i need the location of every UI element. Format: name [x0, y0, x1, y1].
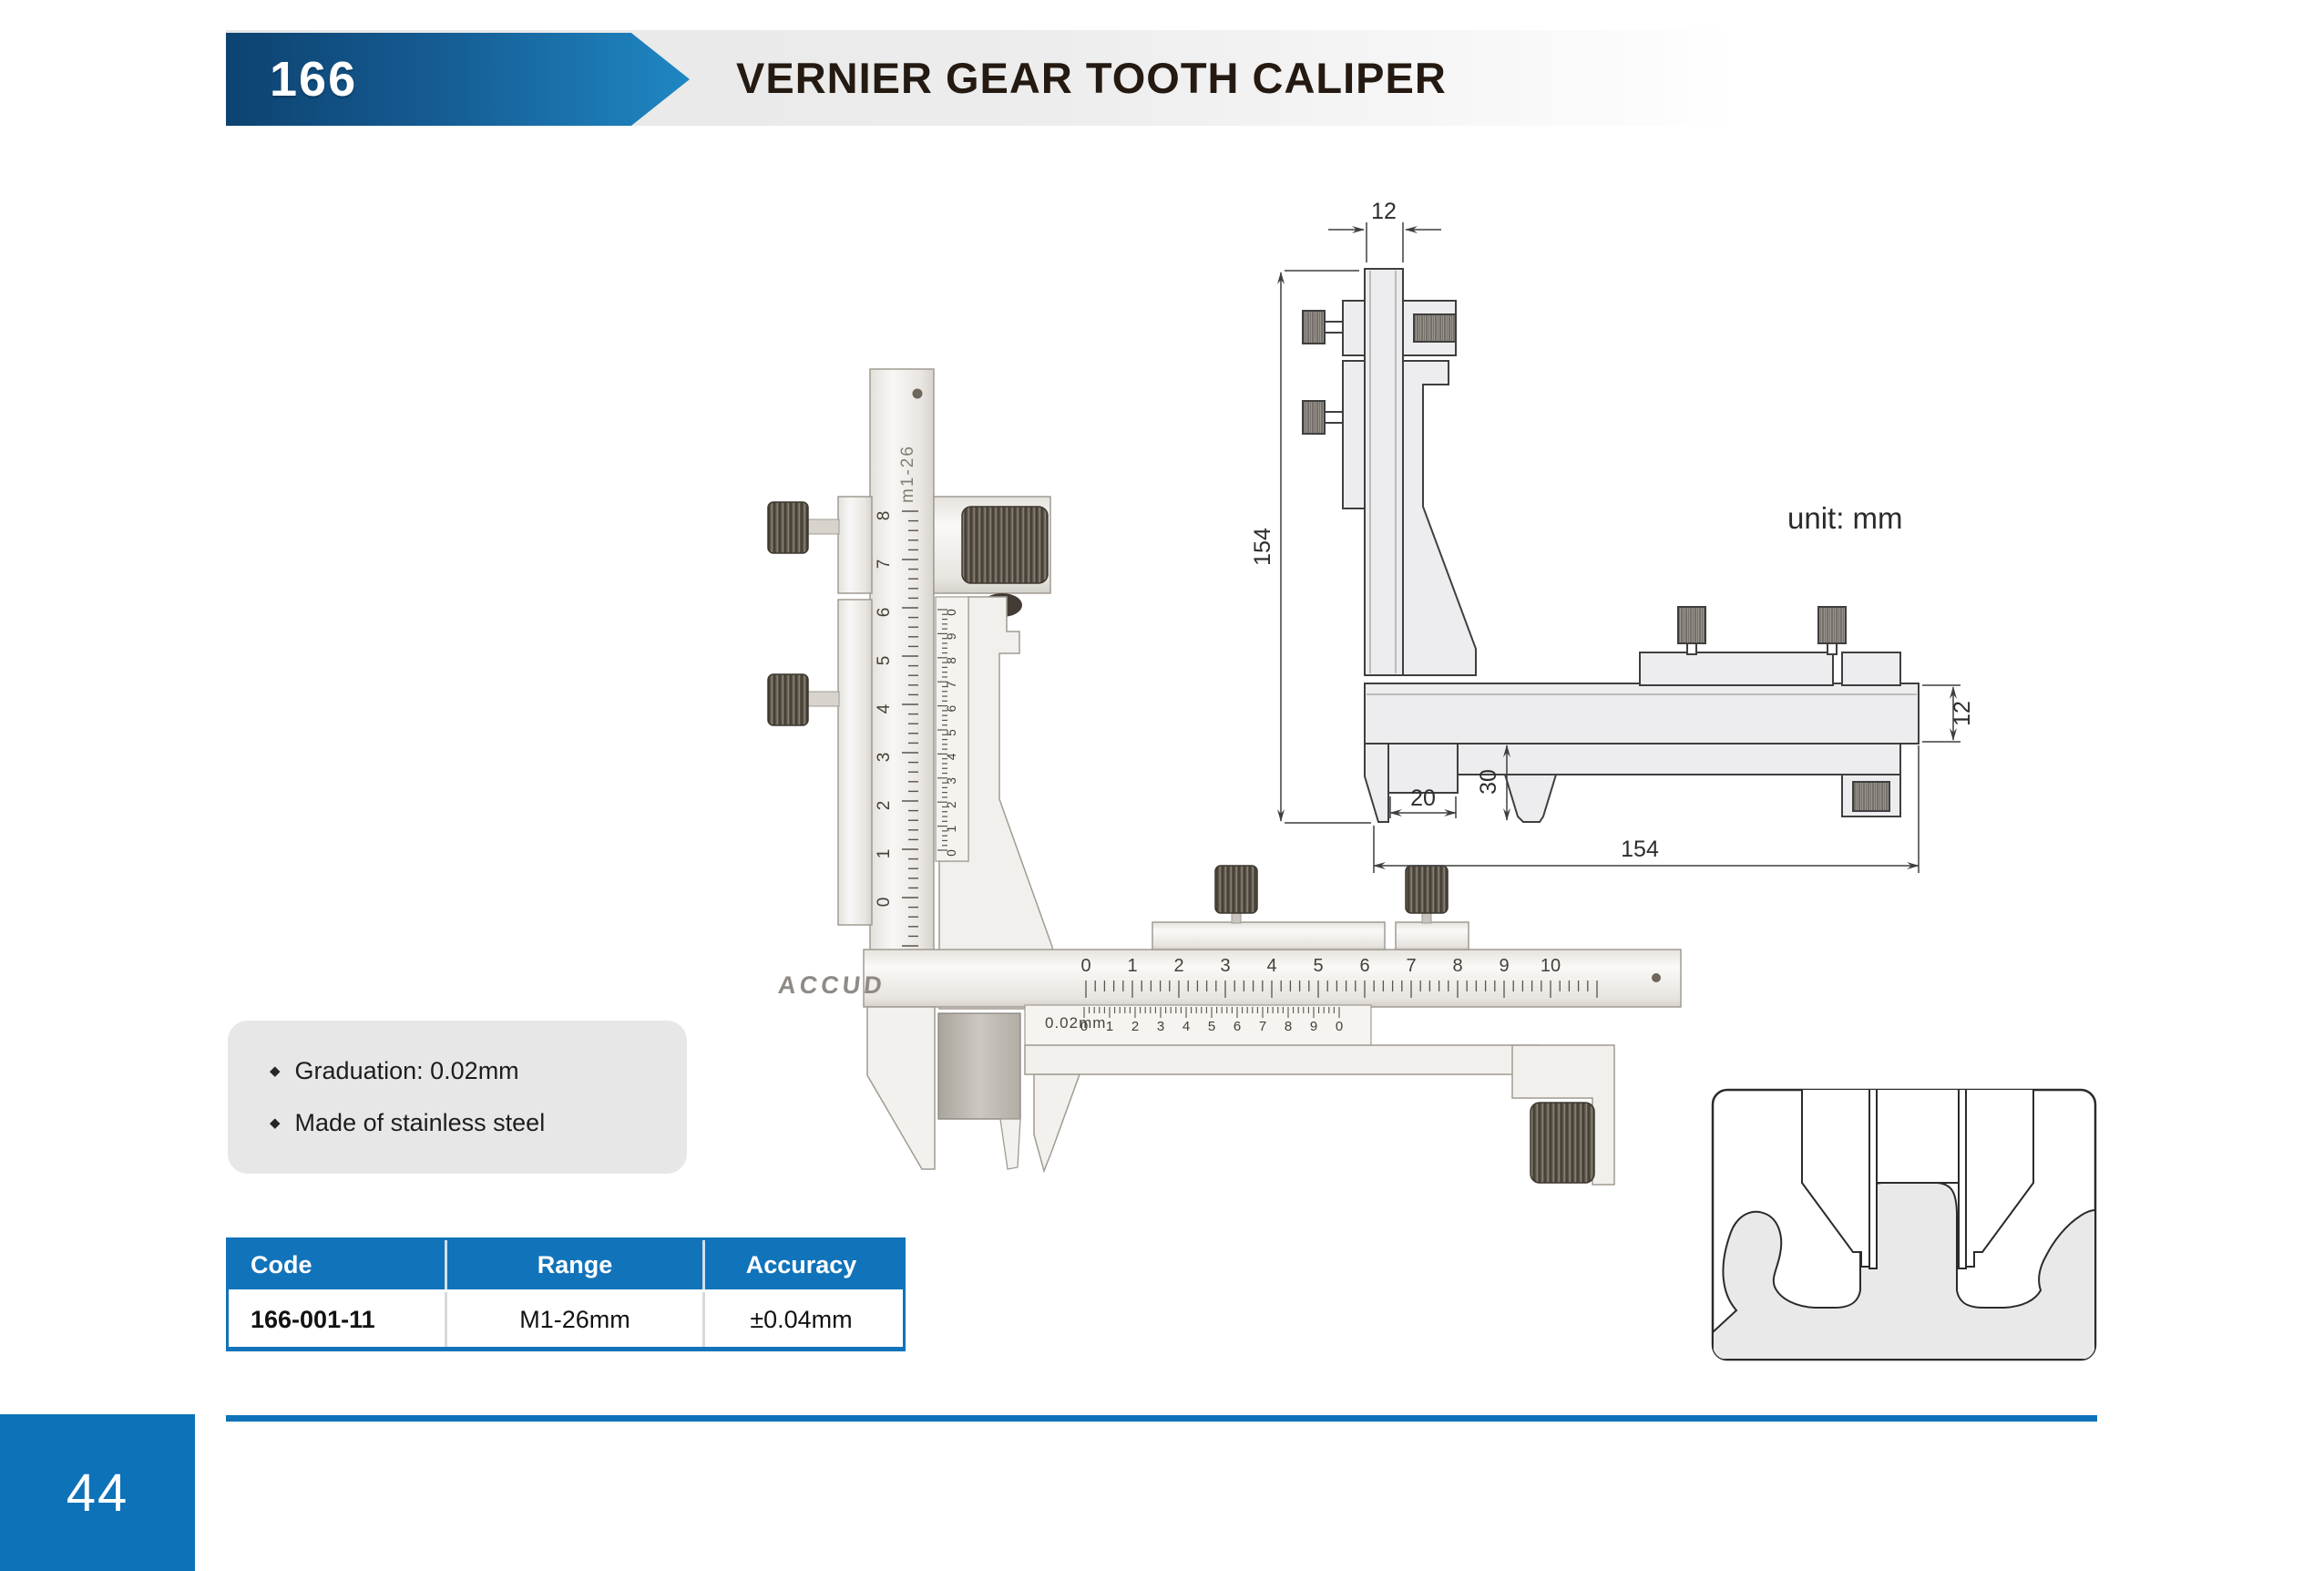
- col-header-accuracy: Accuracy: [702, 1240, 897, 1289]
- catalog-page: 166 VERNIER GEAR TOOTH CALIPER: [0, 0, 2324, 1571]
- spec-table: Code Range Accuracy 166-001-11 M1-26mm ±…: [226, 1237, 906, 1351]
- diamond-bullet-icon: ◆: [270, 1116, 281, 1130]
- features-box: ◆ Graduation: 0.02mm ◆ Made of stainless…: [228, 1021, 687, 1174]
- cell-range: M1-26mm: [445, 1292, 702, 1347]
- feature-item: ◆ Graduation: 0.02mm: [270, 1057, 687, 1085]
- cell-accuracy: ±0.04mm: [702, 1292, 897, 1347]
- feature-text: Made of stainless steel: [295, 1109, 546, 1137]
- diamond-bullet-icon: ◆: [270, 1064, 281, 1078]
- feature-item: ◆ Made of stainless steel: [270, 1109, 687, 1137]
- col-header-range: Range: [445, 1240, 702, 1289]
- col-header-code: Code: [229, 1240, 445, 1289]
- feature-text: Graduation: 0.02mm: [295, 1057, 519, 1085]
- footer-rule: [226, 1415, 2097, 1422]
- page-number: 44: [67, 1463, 129, 1524]
- cell-code: 166-001-11: [229, 1292, 445, 1347]
- table-row: 166-001-11 M1-26mm ±0.04mm: [229, 1289, 903, 1347]
- page-number-box: 44: [0, 1414, 195, 1571]
- table-header-row: Code Range Accuracy: [229, 1240, 903, 1289]
